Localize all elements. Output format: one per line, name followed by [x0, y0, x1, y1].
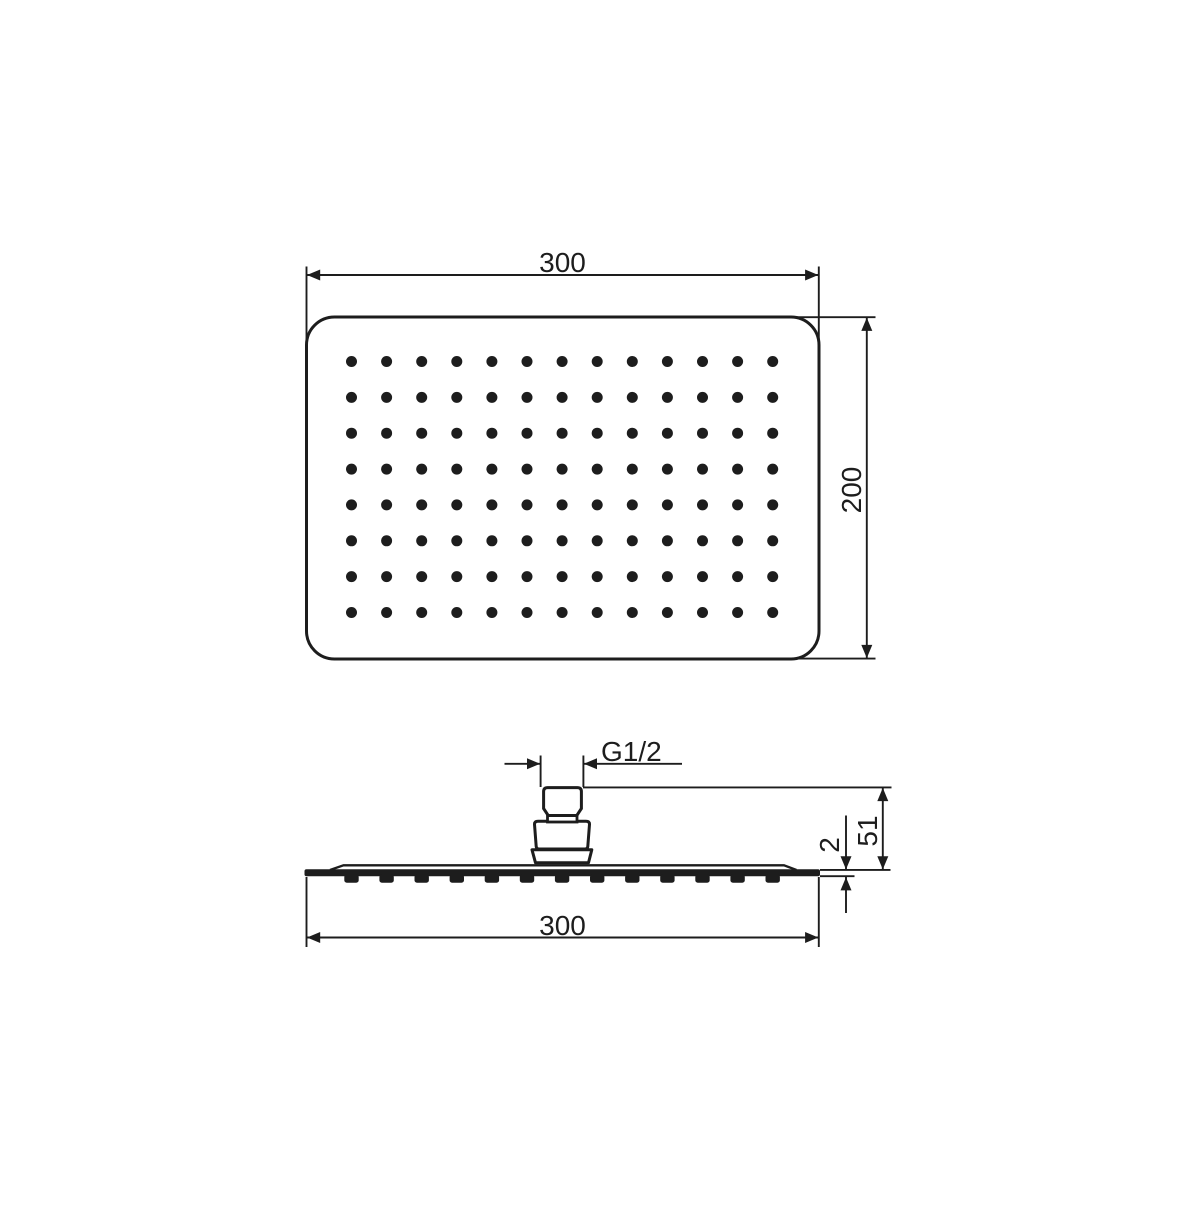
svg-text:200: 200 — [836, 467, 867, 514]
svg-text:G1/2: G1/2 — [601, 736, 662, 767]
svg-text:300: 300 — [539, 247, 586, 278]
svg-text:2: 2 — [814, 837, 845, 853]
svg-text:51: 51 — [852, 815, 883, 846]
svg-text:300: 300 — [539, 910, 586, 941]
